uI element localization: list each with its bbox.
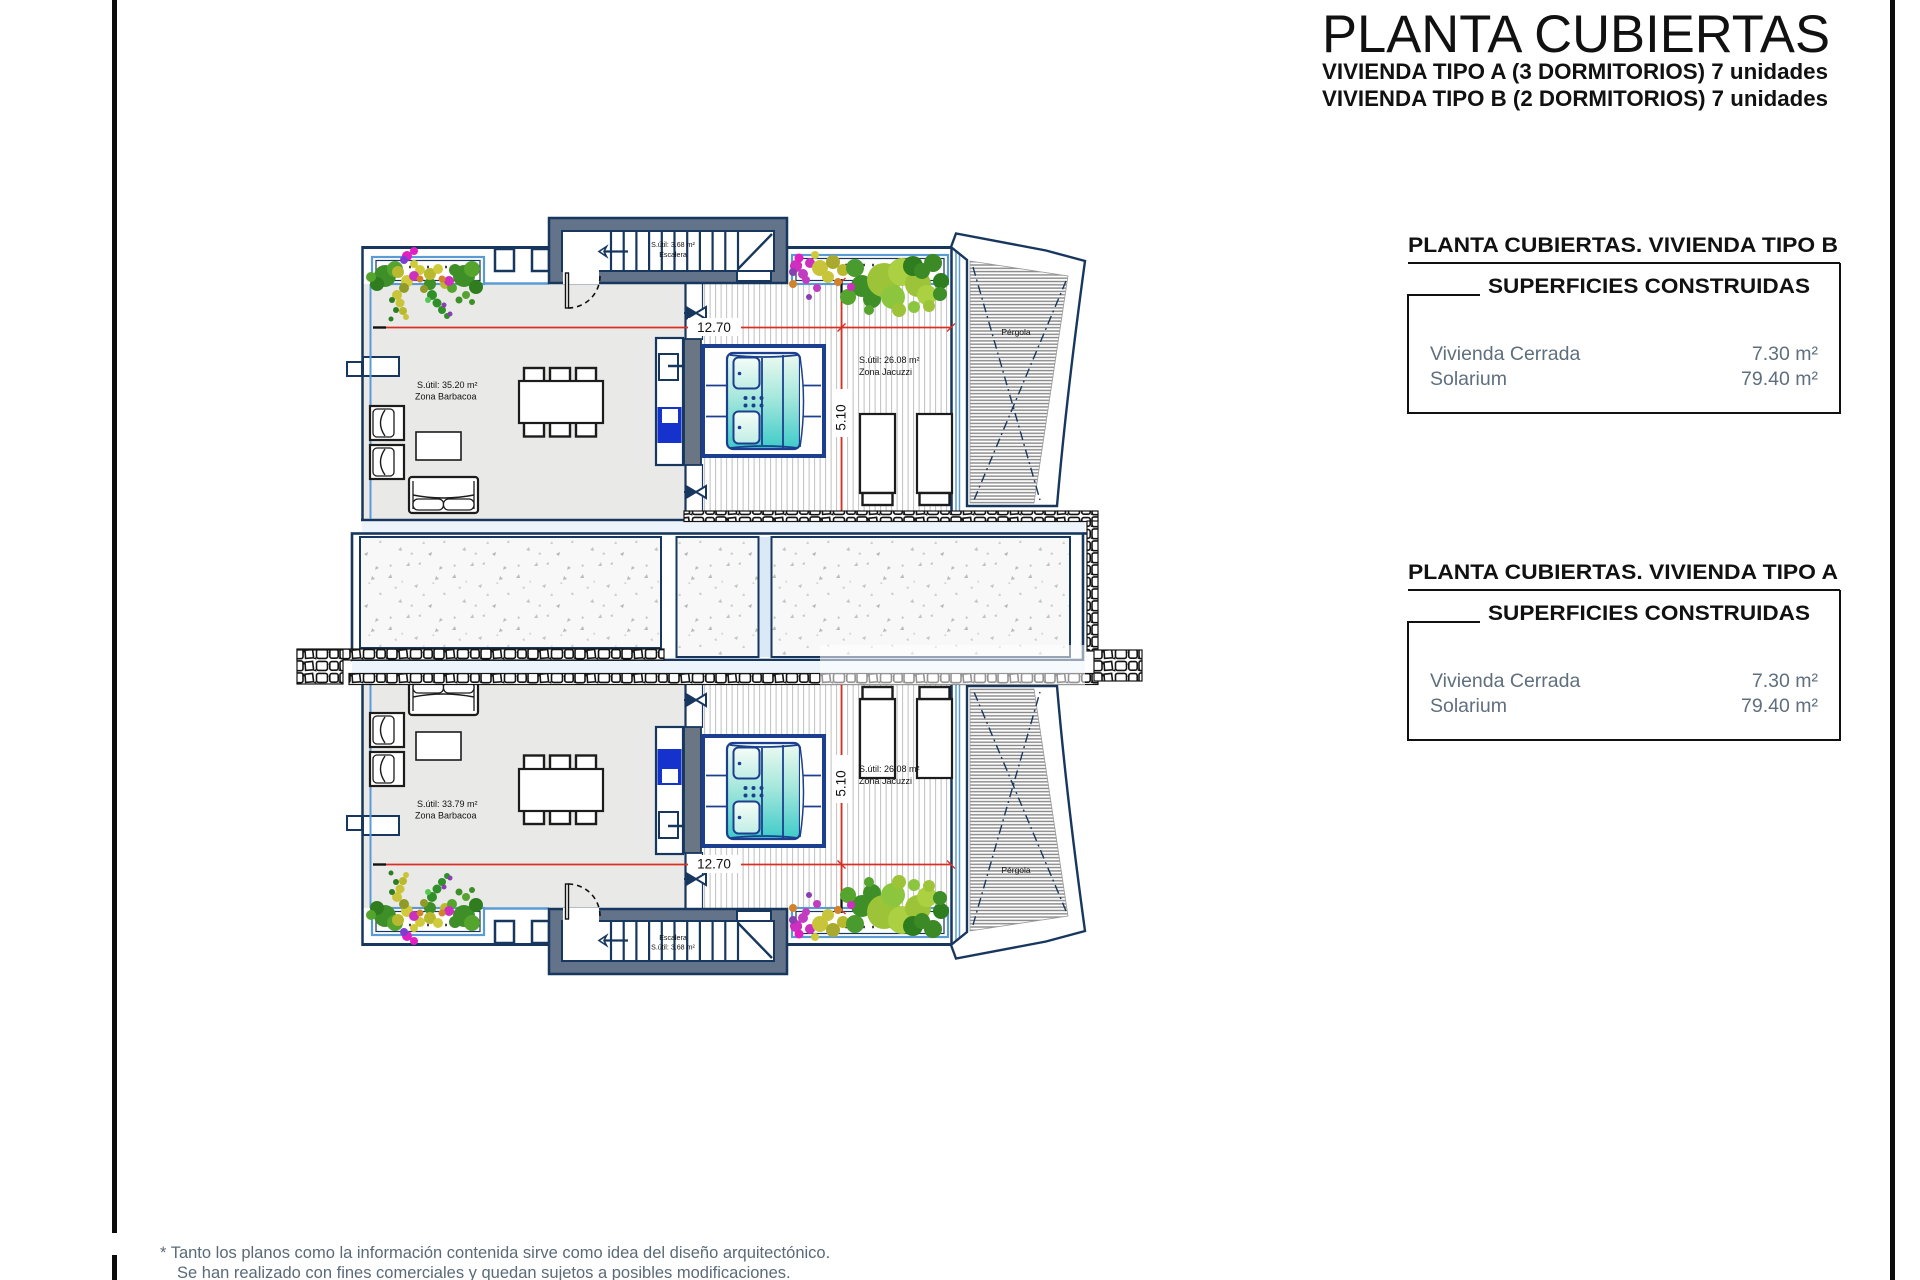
svg-text:Zona Jacuzzi: Zona Jacuzzi: [859, 367, 912, 377]
svg-text:79.40 m²: 79.40 m²: [1741, 695, 1818, 717]
svg-text:SUPERFICIES CONSTRUIDAS: SUPERFICIES CONSTRUIDAS: [1488, 602, 1810, 625]
svg-text:* Tanto los planos como la inf: * Tanto los planos como la información c…: [160, 1244, 830, 1262]
svg-text:Solarium: Solarium: [1430, 368, 1507, 390]
svg-text:5.10: 5.10: [834, 770, 849, 796]
svg-text:Vivienda Cerrada: Vivienda Cerrada: [1430, 343, 1580, 365]
svg-text:12.70: 12.70: [697, 320, 731, 335]
svg-text:Solarium: Solarium: [1430, 695, 1507, 717]
svg-text:12.70: 12.70: [697, 857, 731, 872]
svg-text:Pérgola: Pérgola: [1001, 865, 1031, 875]
svg-text:7.30 m²: 7.30 m²: [1752, 670, 1819, 692]
svg-text:5.10: 5.10: [834, 404, 849, 430]
svg-text:Se han realizado con fines com: Se han realizado con fines comerciales y…: [177, 1264, 791, 1280]
svg-text:PLANTA CUBIERTAS: PLANTA CUBIERTAS: [1322, 5, 1830, 64]
svg-text:S.útil: 3.68 m²: S.útil: 3.68 m²: [651, 944, 695, 952]
svg-text:79.40 m²: 79.40 m²: [1741, 368, 1818, 390]
svg-text:S.útil: 26.08 m²: S.útil: 26.08 m²: [859, 355, 920, 365]
svg-text:Escalera: Escalera: [659, 251, 687, 259]
svg-text:VIVIENDA TIPO A (3 DORMITORIOS: VIVIENDA TIPO A (3 DORMITORIOS) 7 unidad…: [1322, 59, 1828, 84]
svg-text:Pérgola: Pérgola: [1001, 327, 1031, 337]
svg-text:PLANTA CUBIERTAS. VIVIENDA TIP: PLANTA CUBIERTAS. VIVIENDA TIPO A: [1408, 561, 1838, 584]
svg-text:S.útil: 26.08 m²: S.útil: 26.08 m²: [859, 764, 920, 774]
svg-text:Vivienda Cerrada: Vivienda Cerrada: [1430, 670, 1580, 692]
svg-text:PLANTA CUBIERTAS. VIVIENDA TIP: PLANTA CUBIERTAS. VIVIENDA TIPO B: [1408, 234, 1838, 257]
svg-text:Escalera: Escalera: [659, 934, 687, 942]
svg-text:Zona Barbacoa: Zona Barbacoa: [415, 811, 477, 821]
svg-text:SUPERFICIES CONSTRUIDAS: SUPERFICIES CONSTRUIDAS: [1488, 275, 1810, 298]
svg-text:VIVIENDA TIPO B (2 DORMITORIOS: VIVIENDA TIPO B (2 DORMITORIOS) 7 unidad…: [1322, 86, 1828, 111]
svg-text:7.30 m²: 7.30 m²: [1752, 343, 1819, 365]
svg-text:Zona Barbacoa: Zona Barbacoa: [415, 392, 477, 402]
svg-text:S.útil: 3.68 m²: S.útil: 3.68 m²: [651, 241, 695, 249]
svg-text:Zona Jacuzzi: Zona Jacuzzi: [859, 776, 912, 786]
svg-text:S.útil: 35.20 m²: S.útil: 35.20 m²: [417, 380, 478, 390]
svg-text:S.útil: 33.79 m²: S.útil: 33.79 m²: [417, 799, 478, 809]
